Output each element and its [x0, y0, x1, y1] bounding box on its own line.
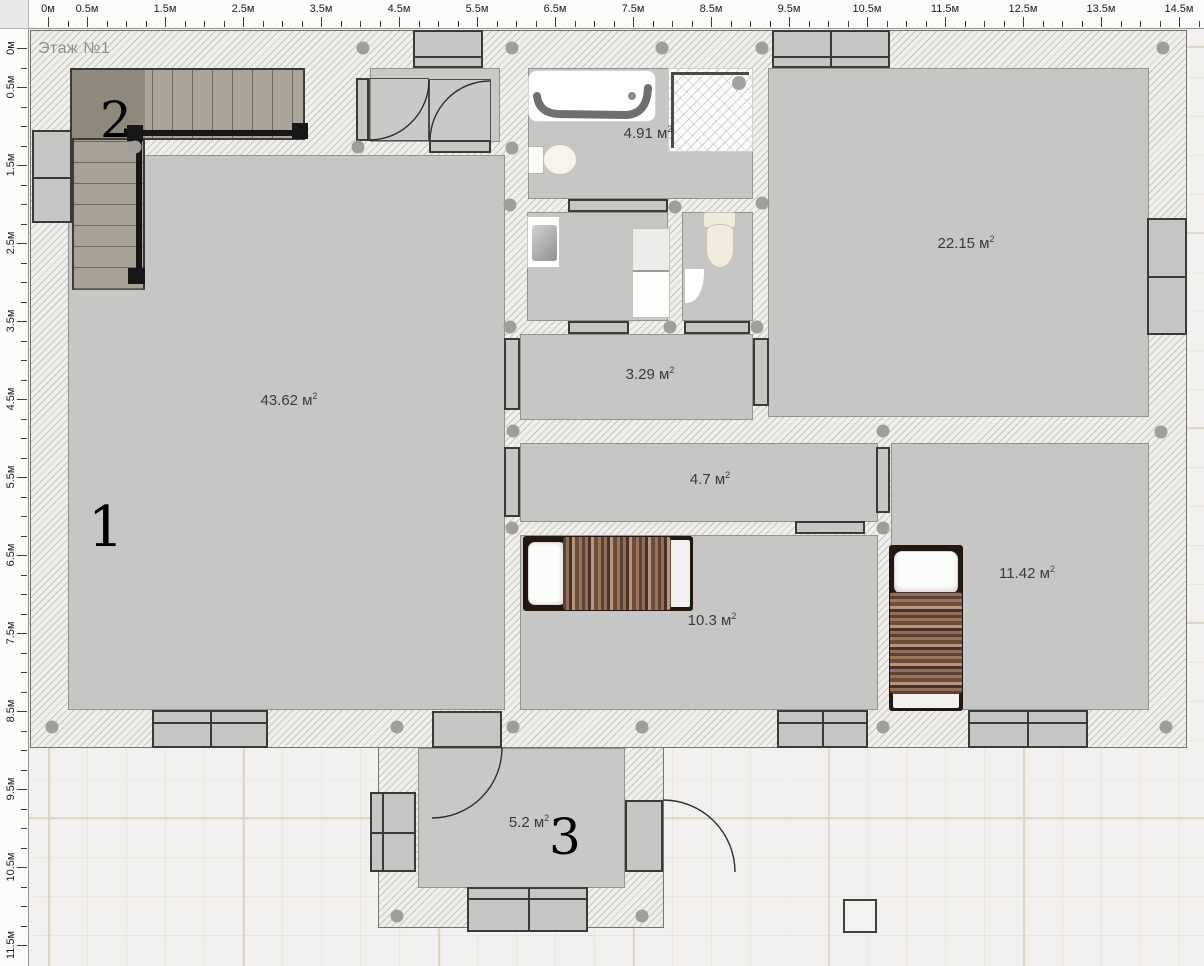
ruler-tick	[21, 672, 27, 673]
door-laundry[interactable]	[568, 321, 629, 334]
wall-node-dot[interactable]	[391, 910, 404, 923]
ruler-tick	[21, 497, 27, 498]
ruler-tick-major	[17, 711, 27, 712]
ruler-tick-major	[17, 87, 27, 88]
ruler-tick	[906, 21, 907, 27]
ruler-tick-major	[789, 17, 790, 27]
door-vestibule-bottom[interactable]	[429, 140, 491, 153]
bed-blanket	[563, 537, 671, 610]
ruler-tick	[21, 828, 27, 829]
wall-node-dot[interactable]	[1155, 426, 1168, 439]
door-swing-area	[369, 78, 429, 141]
room-marker-2[interactable]: 2	[100, 95, 132, 145]
ruler-tick	[536, 21, 537, 27]
bed-blanket	[890, 592, 962, 694]
ruler-label: 4.5м	[5, 388, 17, 411]
ruler-label: 9.5м	[5, 778, 17, 801]
toilet[interactable]	[528, 146, 544, 174]
window-porch-left[interactable]	[370, 792, 416, 872]
ruler-tick	[21, 926, 27, 927]
ruler-tick	[21, 594, 27, 595]
wall-node-dot[interactable]	[504, 321, 517, 334]
ruler-tick-major	[243, 17, 244, 27]
door-bathroom[interactable]	[568, 199, 668, 212]
ruler-tick	[516, 21, 517, 27]
ruler-tick	[438, 21, 439, 27]
ruler-tick-major	[87, 17, 88, 27]
ruler-tick	[21, 536, 27, 537]
ruler-tick	[1160, 21, 1161, 27]
ruler-tick-major	[321, 17, 322, 27]
door-wc[interactable]	[684, 321, 750, 334]
ruler-tick	[828, 21, 829, 27]
ruler-label: 10.5м	[5, 853, 17, 882]
bed-pillow	[528, 542, 566, 605]
ruler-tick	[21, 575, 27, 576]
ruler-tick	[21, 731, 27, 732]
ruler-tick	[1082, 21, 1083, 27]
ruler-tick	[282, 21, 283, 27]
ruler-label: 3.5м	[310, 3, 333, 15]
floorplan-canvas: 43.62 м2 22.15 м2 4.91 м2 3.29 м2 4.7 м2…	[0, 0, 1204, 966]
ruler-tick	[21, 614, 27, 615]
ruler-label: 13.5м	[1087, 3, 1116, 15]
ruler-tick-major	[17, 789, 27, 790]
ruler-tick-major	[17, 243, 27, 244]
ruler-label: 9.5м	[778, 3, 801, 15]
ruler-label: 0.5м	[76, 3, 99, 15]
ruler-tick	[731, 21, 732, 27]
bed-sheet	[669, 540, 690, 607]
window-bottom-bedroom-mid[interactable]	[777, 710, 868, 748]
ruler-tick	[21, 438, 27, 439]
ruler-tick	[21, 848, 27, 849]
ruler-tick	[21, 887, 27, 888]
ruler-tick	[146, 21, 147, 27]
wall-node-dot[interactable]	[46, 721, 59, 734]
door-hallway-left[interactable]	[504, 447, 520, 517]
ruler-tick	[21, 126, 27, 127]
ruler-tick-major	[1179, 17, 1180, 27]
area-label-bathroom: 4.91 м2	[624, 124, 673, 142]
ruler-tick	[1004, 21, 1005, 27]
area-label-bedroom-mid: 10.3 м2	[688, 611, 737, 629]
ruler-tick	[21, 204, 27, 205]
ruler-tick	[21, 185, 27, 186]
ruler-tick-major	[17, 165, 27, 166]
ruler-tick	[750, 21, 751, 27]
ruler-tick	[224, 21, 225, 27]
ruler-tick-major	[477, 17, 478, 27]
ruler-tick	[21, 263, 27, 264]
ruler-tick	[21, 653, 27, 654]
ruler-tick-major	[945, 17, 946, 27]
ruler-tick-major	[17, 399, 27, 400]
ruler-tick	[126, 21, 127, 27]
ruler-label: 0.5м	[5, 76, 17, 99]
area-label-hallway: 4.7 м2	[690, 470, 730, 488]
ruler-tick	[21, 302, 27, 303]
ruler-tick	[984, 21, 985, 27]
window-right-bedroom-large[interactable]	[1147, 218, 1187, 335]
ruler-tick	[653, 21, 654, 27]
outdoor-square-object[interactable]	[843, 899, 877, 933]
wall-node-dot[interactable]	[664, 321, 677, 334]
ruler-tick	[594, 21, 595, 27]
ruler-left: 0м0.5м1.5м2.5м3.5м4.5м5.5м6.5м7.5м8.5м9.…	[0, 28, 29, 966]
stair-railing-horizontal	[133, 130, 301, 136]
ruler-tick	[21, 516, 27, 517]
stair-newel-post	[292, 123, 308, 139]
door-hallway-small-left[interactable]	[504, 338, 520, 410]
ruler-tick-major	[17, 945, 27, 946]
ruler-tick	[419, 21, 420, 27]
laundry-sink[interactable]	[527, 216, 560, 268]
ruler-label: 5.5м	[5, 466, 17, 489]
ruler-label: 10.5м	[853, 3, 882, 15]
ruler-top: 0м0.5м1.5м2.5м3.5м4.5м5.5м6.5м7.5м8.5м9.…	[28, 0, 1204, 29]
ruler-tick	[692, 21, 693, 27]
shower-head-icon	[732, 76, 746, 90]
stair-railing-vertical	[136, 141, 142, 273]
wall-node-dot[interactable]	[506, 142, 519, 155]
shower-frame	[671, 72, 749, 75]
ruler-label: 0м	[5, 41, 17, 55]
wall-node-dot[interactable]	[357, 42, 370, 55]
ruler-label: 7.5м	[5, 622, 17, 645]
ruler-tick	[263, 21, 264, 27]
bathtub[interactable]	[528, 70, 656, 122]
ruler-label: 11.5м	[5, 931, 17, 959]
ruler-tick-major	[17, 321, 27, 322]
ruler-tick-major	[555, 17, 556, 27]
ruler-tick	[21, 107, 27, 108]
wall-node-dot[interactable]	[877, 425, 890, 438]
ruler-tick-major	[17, 477, 27, 478]
wall-node-dot[interactable]	[756, 197, 769, 210]
ruler-tick	[575, 21, 576, 27]
ruler-label: 14.5м	[1165, 3, 1194, 15]
area-label-porch: 5.2 м2	[509, 813, 549, 831]
ruler-label: 7.5м	[622, 3, 645, 15]
ruler-tick	[21, 68, 27, 69]
wall-node-dot[interactable]	[1160, 721, 1173, 734]
ruler-tick-major	[1023, 17, 1024, 27]
ruler-tick-major	[633, 17, 634, 27]
ruler-label: 0м	[41, 3, 55, 15]
door-bedroom-mid[interactable]	[795, 521, 865, 534]
ruler-tick	[21, 809, 27, 810]
wall-node-dot[interactable]	[507, 425, 520, 438]
ruler-tick-major	[867, 17, 868, 27]
ruler-tick	[770, 21, 771, 27]
wall-node-dot[interactable]	[507, 721, 520, 734]
wall-node-dot[interactable]	[352, 141, 365, 154]
wall-node-dot[interactable]	[877, 721, 890, 734]
area-label-hallway-small: 3.29 м2	[626, 365, 675, 383]
door-hallway-small-right[interactable]	[753, 338, 769, 406]
bed-pillow	[894, 551, 958, 594]
wall-node-dot[interactable]	[504, 199, 517, 212]
ruler-tick	[21, 341, 27, 342]
ruler-label: 3.5м	[5, 310, 17, 333]
ruler-label: 2.5м	[232, 3, 255, 15]
ruler-tick-major	[711, 17, 712, 27]
ruler-tick	[1140, 21, 1141, 27]
ruler-label: 4.5м	[388, 3, 411, 15]
ruler-tick-major	[17, 633, 27, 634]
ruler-tick	[887, 21, 888, 27]
ruler-tick	[458, 21, 459, 27]
window-top-bedroom-large[interactable]	[772, 30, 890, 68]
door-porch-exit[interactable]	[625, 800, 663, 872]
ruler-tick	[672, 21, 673, 27]
wall-node-dot[interactable]	[656, 42, 669, 55]
ruler-tick	[614, 21, 615, 27]
ruler-tick	[21, 750, 27, 751]
door-arc	[663, 800, 735, 872]
ruler-label: 5.5м	[466, 3, 489, 15]
wall-node-dot[interactable]	[1157, 42, 1170, 55]
ruler-tick	[302, 21, 303, 27]
wall-node-dot[interactable]	[877, 522, 890, 535]
floor-title: Этаж №1	[38, 40, 110, 58]
ruler-tick-major	[48, 17, 49, 27]
ruler-label: 2.5м	[5, 232, 17, 255]
ruler-tick	[21, 146, 27, 147]
shower-cabin[interactable]	[668, 68, 753, 152]
ruler-tick	[21, 282, 27, 283]
ruler-tick	[1121, 21, 1122, 27]
ruler-tick	[21, 770, 27, 771]
door-vestibule-left[interactable]	[356, 78, 369, 141]
wall-node-dot[interactable]	[391, 721, 404, 734]
wall-node-dot[interactable]	[506, 42, 519, 55]
washing-machine[interactable]	[632, 228, 670, 318]
wall-node-dot[interactable]	[506, 522, 519, 535]
door-porch-entry[interactable]	[432, 711, 502, 748]
ruler-tick	[21, 906, 27, 907]
wall-node-dot[interactable]	[751, 321, 764, 334]
toilet-bowl[interactable]	[543, 144, 577, 175]
ruler-label: 12.5м	[1009, 3, 1038, 15]
wall-node-dot[interactable]	[636, 721, 649, 734]
ruler-tick-major	[17, 48, 27, 49]
ruler-label: 11.5м	[931, 3, 959, 15]
ruler-tick	[21, 380, 27, 381]
ruler-tick-major	[1101, 17, 1102, 27]
washer-lid	[633, 229, 669, 272]
ruler-tick	[68, 21, 69, 27]
ruler-tick	[204, 21, 205, 27]
bed-single[interactable]	[889, 545, 963, 711]
ruler-tick	[341, 21, 342, 27]
window-top-vestibule[interactable]	[413, 30, 483, 68]
area-label-bedroom-large: 22.15 м2	[937, 234, 994, 252]
ruler-tick	[107, 21, 108, 27]
ruler-tick	[965, 21, 966, 27]
ruler-label: 8.5м	[700, 3, 723, 15]
area-label-living: 43.62 м2	[260, 391, 317, 409]
wall-node-dot[interactable]	[756, 42, 769, 55]
ruler-tick-major	[17, 867, 27, 868]
door-hallway-right[interactable]	[876, 447, 890, 513]
ruler-label: 1.5м	[5, 154, 17, 177]
room-marker-3[interactable]: 3	[549, 812, 581, 862]
wc-toilet-bowl[interactable]	[706, 224, 734, 268]
ruler-tick	[21, 360, 27, 361]
ruler-tick	[21, 419, 27, 420]
ruler-corner	[0, 0, 29, 29]
ruler-tick	[926, 21, 927, 27]
wall-node-dot[interactable]	[669, 201, 682, 214]
ruler-label: 6.5м	[5, 544, 17, 567]
room-marker-1[interactable]: 1	[88, 500, 124, 556]
ruler-label: 6.5м	[544, 3, 567, 15]
ruler-tick	[848, 21, 849, 27]
window-bottom-living[interactable]	[152, 710, 268, 748]
bed-single[interactable]	[523, 536, 693, 611]
wall-node-dot[interactable]	[636, 910, 649, 923]
ruler-tick	[1062, 21, 1063, 27]
ruler-tick	[380, 21, 381, 27]
window-bottom-bedroom-corner[interactable]	[968, 710, 1088, 748]
window-porch-bottom[interactable]	[467, 887, 588, 932]
ruler-label: 1.5м	[154, 3, 177, 15]
ruler-label: 8.5м	[5, 700, 17, 723]
ruler-tick	[21, 224, 27, 225]
ruler-tick	[497, 21, 498, 27]
ruler-tick-major	[165, 17, 166, 27]
ruler-tick	[21, 692, 27, 693]
ruler-tick-major	[17, 555, 27, 556]
ruler-tick	[21, 458, 27, 459]
ruler-tick	[809, 21, 810, 27]
ruler-tick-major	[399, 17, 400, 27]
area-label-bedroom-corner: 11.42 м2	[999, 564, 1055, 582]
ruler-tick	[1043, 21, 1044, 27]
sink-basin	[532, 225, 557, 261]
stair-newel-post	[128, 268, 145, 284]
ruler-tick	[360, 21, 361, 27]
ruler-tick	[185, 21, 186, 27]
window-left-living[interactable]	[32, 130, 72, 223]
ruler-tick	[1199, 21, 1200, 27]
